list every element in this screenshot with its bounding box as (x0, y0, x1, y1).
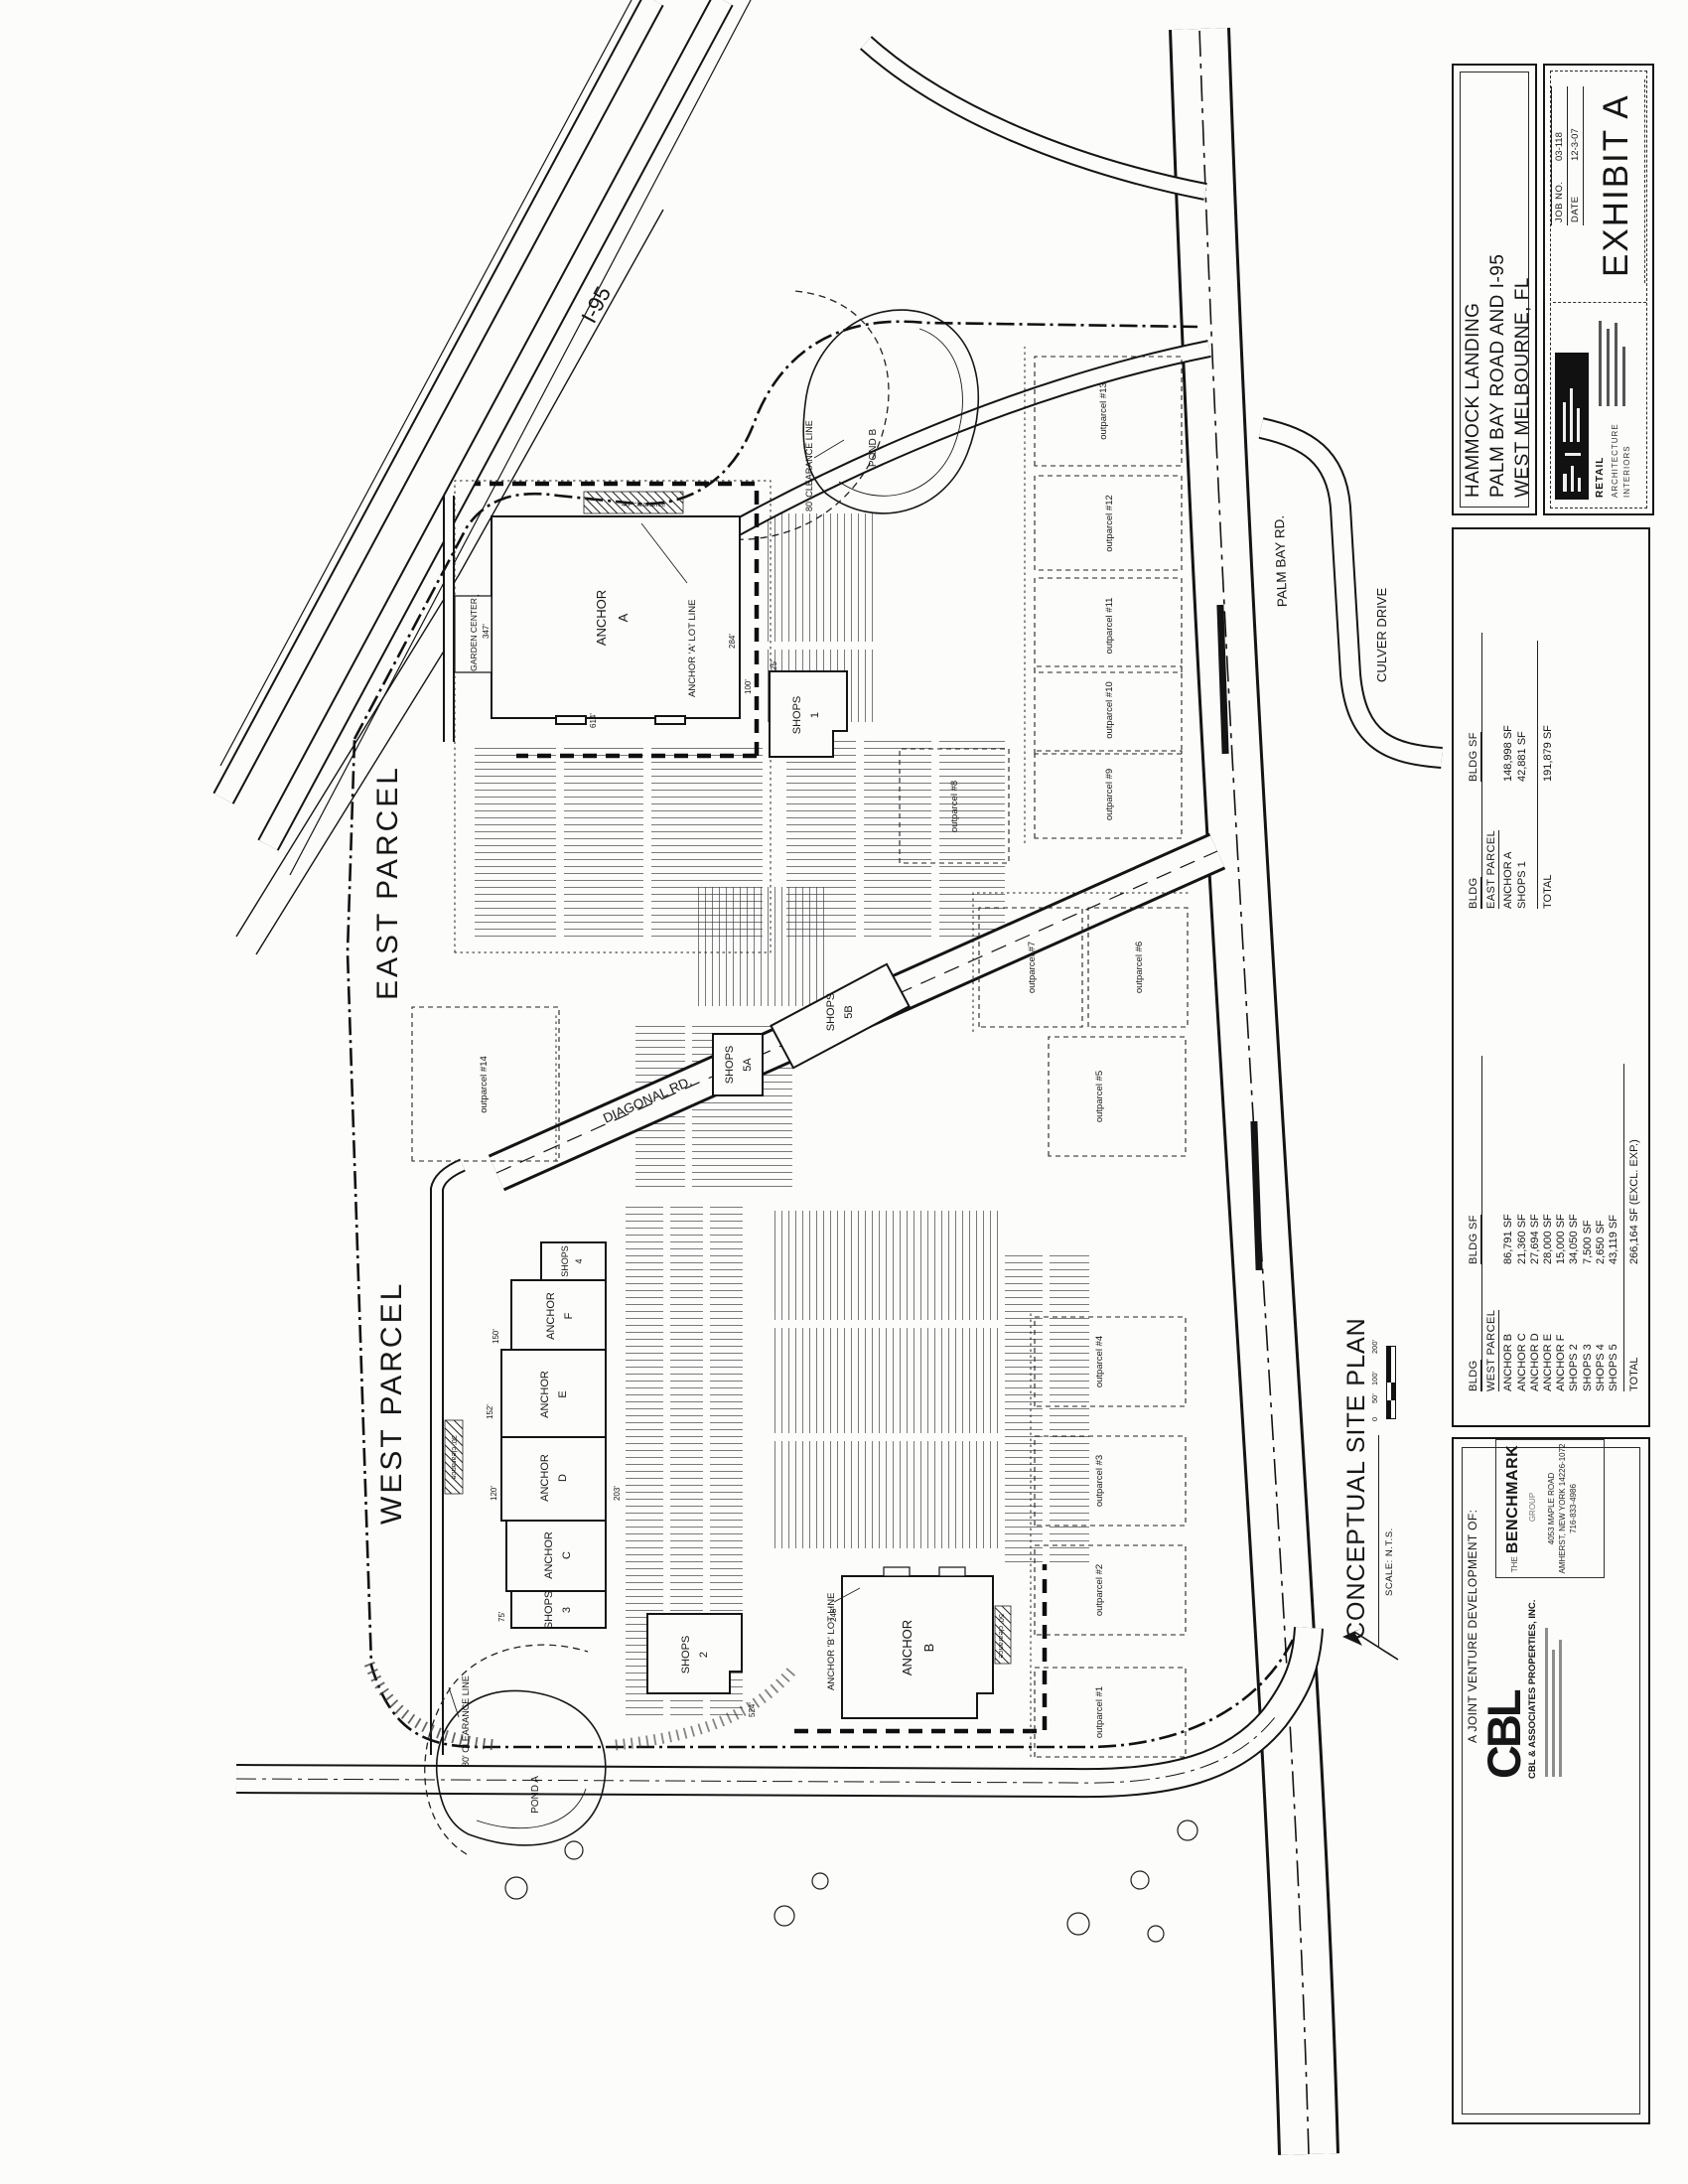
plan-title-underline (1378, 1435, 1379, 1648)
svg-text:outparcel #3: outparcel #3 (1094, 1455, 1105, 1507)
svg-text:outparcel #4: outparcel #4 (1094, 1336, 1105, 1387)
project-location: PALM BAY ROAD AND I-95 (1485, 254, 1510, 498)
svg-text:248': 248' (829, 1607, 838, 1622)
svg-text:outparcel #9: outparcel #9 (1104, 769, 1115, 820)
site-plan-map: EAST PARCEL WEST PARCEL I-95 PALM BAY RD… (0, 0, 1688, 2184)
svg-text:120': 120' (490, 1486, 498, 1501)
west-parcel-table: BLDG BLDG SF WEST PARCEL ANCHOR B86,791 … (1468, 1056, 1641, 1391)
table-row: ANCHOR D27,694 SF (1529, 1056, 1542, 1391)
svg-text:3: 3 (561, 1607, 573, 1613)
project-name: HAMMOCK LANDING (1461, 254, 1485, 498)
east-parcel-table: BLDG BLDG SF EAST PARCEL ANCHOR A148,998… (1468, 633, 1555, 909)
job-no-value: 03-118 (1552, 89, 1567, 161)
table-row: SHOPS 42,650 SF (1595, 1056, 1608, 1391)
plan-scale: SCALE: N.T.S. (1384, 1528, 1395, 1596)
benchmark-block: THEBENCHMARKGROUP 4053 MAPLE ROAD AMHERS… (1495, 1439, 1605, 1578)
clearance-30-label: 30' clearance (450, 1435, 459, 1479)
architect-logo (1555, 353, 1589, 500)
svg-text:75': 75' (497, 1611, 506, 1622)
svg-text:C: C (561, 1551, 573, 1559)
architect-block: RETAIL ARCHITECTURE INTERIORS (1551, 313, 1648, 502)
svg-text:524': 524' (748, 1702, 757, 1717)
svg-text:1: 1 (809, 712, 821, 718)
shops-1-label: SHOPS (791, 696, 803, 735)
east-table-header: BLDG BLDG SF (1468, 633, 1482, 909)
svg-text:D: D (557, 1474, 569, 1482)
plan-title: CONCEPTUAL SITE PLAN (1342, 1317, 1371, 1640)
svg-text:outparcel #11: outparcel #11 (1104, 598, 1115, 655)
shops-5b-label: SHOPS (825, 993, 837, 1032)
west-table-header: BLDG BLDG SF (1468, 1056, 1482, 1391)
svg-text:5A: 5A (742, 1058, 754, 1072)
exhibit-divider (1553, 302, 1646, 303)
east-parcel-label: EAST PARCEL (371, 765, 404, 1000)
svg-text:outparcel #10: outparcel #10 (1104, 681, 1115, 739)
pond-b-label: POND B (868, 429, 879, 468)
svg-text:100': 100' (744, 679, 753, 694)
svg-text:614': 614' (589, 713, 598, 728)
svg-text:outparcel #1: outparcel #1 (1094, 1686, 1105, 1738)
exhibit-box: RETAIL ARCHITECTURE INTERIORS JOB NO. 03… (1543, 64, 1654, 515)
table-total-row: TOTAL191,879 SF (1542, 633, 1555, 909)
pond-a-label: POND A (530, 1776, 541, 1814)
anchor-d-label: ANCHOR (539, 1454, 551, 1502)
clearance-50-label: 50' clearance (997, 1614, 1006, 1658)
project-title-box: HAMMOCK LANDING PALM BAY ROAD AND I-95 W… (1452, 64, 1537, 515)
culver-drive-label: CULVER DRIVE (1374, 588, 1389, 682)
job-no-row: JOB NO. 03-118 (1552, 86, 1568, 225)
svg-text:152': 152' (486, 1404, 494, 1419)
table-row: SHOPS 234,050 SF (1568, 1056, 1581, 1391)
scale-bar-labels: 0 50' 100' 200' (1370, 1336, 1379, 1421)
table-row: ANCHOR A148,998 SF (1502, 633, 1515, 909)
garden-center-label: GARDEN CENTER (469, 598, 479, 671)
anchor-b-building (842, 1567, 993, 1718)
svg-text:2: 2 (698, 1652, 710, 1658)
shops-2-label: SHOPS (680, 1636, 692, 1674)
svg-text:A: A (616, 613, 631, 622)
benchmark-name-line: THEBENCHMARKGROUP (1504, 1440, 1540, 1577)
rear-service-drive (437, 496, 463, 1755)
clearance-80-east-label: 80' CLEARANCE LINE (804, 420, 814, 511)
cbl-address-illegible-1 (1545, 1628, 1548, 1777)
svg-text:4: 4 (574, 1258, 584, 1263)
svg-text:203': 203' (613, 1486, 622, 1501)
architect-address-illegible-2 (1607, 329, 1610, 406)
clearance-80-west-label: 80' CLEARANCE LINE (461, 1675, 471, 1767)
svg-text:5B: 5B (843, 1005, 855, 1018)
svg-text:F: F (563, 1312, 575, 1319)
date-row: DATE 12-3-07 (1568, 86, 1584, 225)
table-row: SHOPS 142,881 SF (1516, 633, 1529, 909)
svg-text:outparcel #12: outparcel #12 (1104, 495, 1115, 552)
table-total-row: TOTAL266,164 SF (EXCL. EXP.) (1628, 1056, 1641, 1391)
east-table-title: EAST PARCEL (1485, 633, 1498, 909)
shops-4-label: SHOPS (560, 1245, 570, 1277)
svg-text:outparcel #5: outparcel #5 (1094, 1071, 1105, 1122)
west-table-title: WEST PARCEL (1485, 1056, 1498, 1391)
exhibit-underline (1644, 79, 1645, 283)
table-row: ANCHOR F15,000 SF (1555, 1056, 1568, 1391)
clearance-40-label: 40' clearance (622, 500, 665, 509)
west-road (236, 1628, 1309, 1783)
exhibit-title: EXHIBIT A (1597, 93, 1636, 277)
svg-text:150': 150' (492, 1329, 500, 1344)
job-no-label: JOB NO. (1552, 161, 1567, 225)
table-row: SHOPS 543,119 SF (1608, 1056, 1620, 1391)
shops-5a-building (713, 1034, 763, 1095)
svg-text:outparcel #8: outparcel #8 (949, 781, 960, 832)
shops-2-building (647, 1614, 742, 1693)
architect-word-interiors: INTERIORS (1622, 445, 1631, 498)
trees (505, 1820, 1197, 1942)
svg-text:E: E (557, 1390, 569, 1397)
shops-5a-label: SHOPS (724, 1046, 736, 1085)
west-parcel-label: WEST PARCEL (375, 1281, 408, 1525)
anchor-a-label: ANCHOR (594, 590, 609, 646)
project-city: WEST MELBOURNE, FL (1510, 254, 1535, 498)
benchmark-address: 4053 MAPLE ROAD AMHERST, NEW YORK 14226-… (1546, 1440, 1579, 1577)
developer-box: A JOINT VENTURE DEVELOPMENT OF: CBL CBL … (1452, 1437, 1650, 2124)
shops-3-label: SHOPS (543, 1591, 555, 1630)
architect-word-retail: RETAIL (1595, 457, 1606, 498)
table-total-rule (1623, 1064, 1624, 1391)
table-row: ANCHOR B86,791 SF (1502, 1056, 1515, 1391)
parcel-tables-box: BLDG BLDG SF WEST PARCEL ANCHOR B86,791 … (1452, 527, 1650, 1427)
anchor-f-label: ANCHOR (545, 1292, 557, 1340)
table-row: ANCHOR C21,360 SF (1516, 1056, 1529, 1391)
palm-bay-road (1199, 29, 1309, 2154)
svg-text:outparcel #14: outparcel #14 (479, 1056, 490, 1113)
anchor-a-lot-line-label: ANCHOR 'A' LOT LINE (687, 600, 698, 697)
anchor-c-label: ANCHOR (543, 1531, 555, 1579)
table-row: SHOPS 37,500 SF (1582, 1056, 1595, 1391)
svg-text:outparcel #6: outparcel #6 (1134, 942, 1145, 993)
table-row: ANCHOR E28,000 SF (1542, 1056, 1555, 1391)
pond-a-clearance-arc (425, 1645, 588, 1854)
architect-address-illegible-3 (1615, 323, 1618, 406)
svg-text:B: B (921, 1644, 936, 1653)
date-label: DATE (1568, 161, 1583, 225)
cbl-logo: CBL (1481, 1605, 1527, 1779)
palm-bay-rd-label: PALM BAY RD. (1272, 515, 1290, 608)
architect-address-illegible-1 (1599, 321, 1602, 406)
date-value: 12-3-07 (1568, 89, 1583, 161)
architect-address-illegible-4 (1622, 347, 1625, 406)
svg-text:347': 347' (482, 624, 491, 639)
svg-text:outparcel #7: outparcel #7 (1027, 942, 1038, 993)
roads (220, 0, 1442, 2154)
table-total-rule (1537, 641, 1538, 909)
svg-text:outparcel #2: outparcel #2 (1094, 1564, 1105, 1616)
anchor-b-label: ANCHOR (900, 1620, 914, 1675)
site-plan-sheet: EAST PARCEL WEST PARCEL I-95 PALM BAY RD… (0, 0, 1688, 2184)
cbl-address-illegible-2 (1552, 1650, 1555, 1777)
svg-text:284': 284' (728, 634, 737, 649)
svg-text:25': 25' (770, 659, 778, 670)
cbl-company-name: CBL & ASSOCIATES PROPERTIES, INC. (1527, 1605, 1538, 1779)
svg-text:outparcel #13: outparcel #13 (1098, 382, 1109, 440)
scale-bar (1386, 1346, 1396, 1419)
anchor-e-label: ANCHOR (539, 1371, 551, 1418)
architect-word-architecture: ARCHITECTURE (1611, 423, 1619, 498)
cbl-block: CBL CBL & ASSOCIATES PROPERTIES, INC. (1481, 1605, 1538, 1779)
cbl-address-illegible-3 (1559, 1640, 1562, 1777)
i95-ramps (657, 43, 1209, 573)
scanned-page: EAST PARCEL WEST PARCEL I-95 PALM BAY RD… (0, 0, 1688, 2184)
job-date-table: JOB NO. 03-118 DATE 12-3-07 (1551, 86, 1584, 225)
